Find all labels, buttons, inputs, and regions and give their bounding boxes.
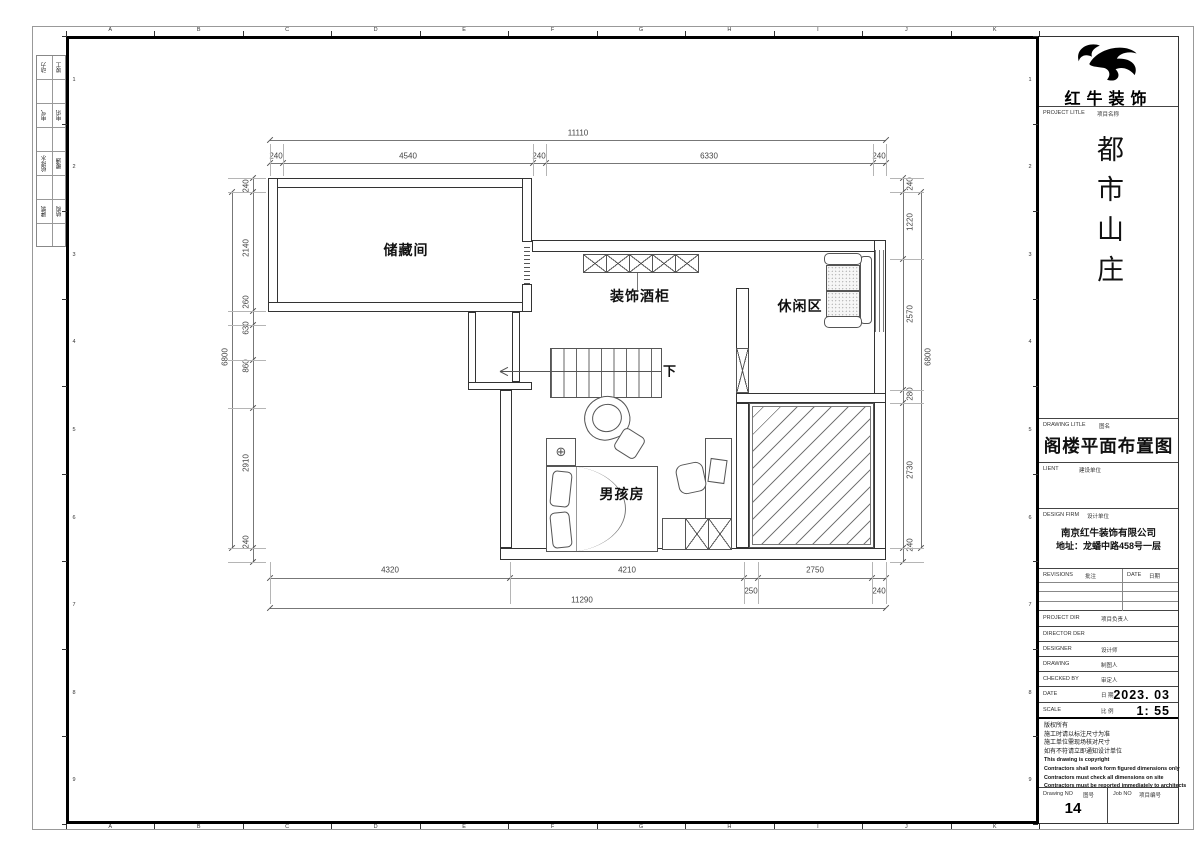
tb-logo-section: 红牛装饰 bbox=[1039, 37, 1178, 107]
copyright-line: Contractors must check all dimensions on… bbox=[1044, 774, 1178, 783]
door-symbol bbox=[524, 244, 530, 284]
grid-tick bbox=[154, 824, 155, 829]
sofa-armrest bbox=[824, 316, 862, 328]
grid-number-right: 3 bbox=[1028, 252, 1031, 258]
grid-letter-top: A bbox=[108, 27, 112, 33]
revisions-label-cn: 批注 bbox=[1085, 572, 1096, 580]
extension-line bbox=[873, 144, 874, 176]
grid-letter-bottom: K bbox=[993, 824, 997, 830]
grid-letter-bottom: A bbox=[108, 824, 112, 830]
grid-number-right: 1 bbox=[1028, 77, 1031, 83]
tb-copyright-section: 版权所有 施工时请以标注尺寸为准 施工单位需现场核对尺寸 如有不符请立即通知设计… bbox=[1039, 719, 1178, 788]
row-label-cn: 制图人 bbox=[1101, 661, 1118, 669]
date-col-label-cn: 日期 bbox=[1149, 572, 1160, 580]
grid-tick bbox=[62, 36, 67, 37]
grid-letter-bottom: I bbox=[817, 824, 819, 830]
copyright-line: Contractors shall work form figured dime… bbox=[1044, 765, 1178, 774]
firm-label-cn: 设计单位 bbox=[1087, 512, 1109, 520]
dim-line bbox=[270, 578, 886, 579]
revisions-label: REVISIONS bbox=[1043, 572, 1073, 578]
grid-tick bbox=[1033, 649, 1038, 650]
dim-bottom: 250 bbox=[744, 587, 757, 596]
dim-tick bbox=[883, 137, 889, 143]
grid-tick bbox=[1033, 561, 1038, 562]
grid-tick bbox=[774, 824, 775, 829]
drain-symbol: ⊕ bbox=[546, 438, 576, 466]
tb-row-checked: CHECKED BY 审定人 bbox=[1039, 672, 1178, 687]
grid-number-right: 7 bbox=[1028, 602, 1031, 608]
extension-line bbox=[270, 144, 271, 176]
grid-tick bbox=[1033, 299, 1038, 300]
wall bbox=[522, 178, 532, 242]
grid-tick bbox=[1033, 824, 1038, 825]
wine-cabinet-cell bbox=[606, 254, 630, 273]
dim-line bbox=[270, 608, 886, 609]
grid-number-left: 3 bbox=[72, 252, 75, 258]
dim-right: 2570 bbox=[906, 305, 915, 323]
row-label-cn: 审定人 bbox=[1101, 676, 1118, 684]
dim-bottom: 240 bbox=[872, 587, 885, 596]
grid-tick bbox=[1033, 736, 1038, 737]
copyright-line: 版权所有 bbox=[1044, 722, 1178, 731]
dim-line bbox=[903, 178, 904, 562]
grid-number-right: 2 bbox=[1028, 164, 1031, 170]
client-label: LIENT bbox=[1043, 466, 1059, 472]
grid-number-left: 2 bbox=[72, 164, 75, 170]
grid-letter-top: C bbox=[285, 27, 289, 33]
job-no-label-cn: 项目编号 bbox=[1139, 791, 1161, 799]
grid-tick bbox=[154, 31, 155, 36]
extension-line bbox=[270, 562, 271, 604]
extension-line bbox=[228, 178, 266, 179]
extension-line bbox=[886, 562, 887, 604]
grid-number-left: 8 bbox=[72, 690, 75, 696]
wine-cabinet-cell bbox=[629, 254, 653, 273]
grid-letter-bottom: J bbox=[905, 824, 908, 830]
extension-line bbox=[228, 325, 266, 326]
project-title-label: PROJECT LITLE bbox=[1043, 110, 1085, 116]
tb-revisions-section: REVISIONS 批注 DATE 日期 bbox=[1039, 569, 1178, 611]
grid-letter-top: G bbox=[639, 27, 643, 33]
copyright-line: This drawing is copyright bbox=[1044, 756, 1178, 765]
extension-line bbox=[886, 144, 887, 176]
desk-chair bbox=[674, 460, 708, 495]
row-label: DESIGNER bbox=[1043, 646, 1072, 652]
grid-tick bbox=[1033, 474, 1038, 475]
grid-tick bbox=[597, 31, 598, 36]
copyright-line: 施工单位需现场核对尺寸 bbox=[1044, 739, 1178, 748]
revisions-divider bbox=[1122, 569, 1123, 611]
firm-label: DESIGN FIRM bbox=[1043, 512, 1079, 518]
room-label-wine-cabinet: 装饰酒柜 bbox=[610, 286, 670, 306]
grid-tick bbox=[862, 824, 863, 829]
wall bbox=[268, 178, 532, 188]
grid-tick bbox=[1033, 124, 1038, 125]
extension-line bbox=[890, 390, 924, 391]
dim-left: 2140 bbox=[242, 239, 251, 257]
monitor bbox=[707, 458, 727, 484]
grid-number-left: 6 bbox=[72, 515, 75, 521]
extension-line bbox=[510, 562, 511, 604]
grid-tick bbox=[62, 736, 67, 737]
sheet: 动力竣工电气电讯给排水暖通建筑结构 bbox=[0, 0, 1200, 844]
extension-line bbox=[890, 178, 924, 179]
grid-tick bbox=[62, 561, 67, 562]
grid-letter-bottom: E bbox=[462, 824, 466, 830]
wall bbox=[736, 403, 749, 548]
grid-tick bbox=[331, 824, 332, 829]
extension-line bbox=[228, 562, 266, 563]
sofa-cushion bbox=[826, 265, 860, 291]
grid-letter-top: F bbox=[551, 27, 554, 33]
stairs-down-label: 下 bbox=[663, 361, 677, 380]
extension-line bbox=[283, 144, 284, 176]
grid-letter-top: K bbox=[993, 27, 997, 33]
row-label: CHECKED BY bbox=[1043, 676, 1079, 682]
grid-letter-bottom: C bbox=[285, 824, 289, 830]
dim-line bbox=[232, 192, 233, 548]
dim-right: 1220 bbox=[906, 213, 915, 231]
sofa-armrest bbox=[824, 253, 862, 265]
drawing-title-label: DRAWING LITLE bbox=[1043, 422, 1086, 428]
extension-line bbox=[890, 192, 924, 193]
grid-tick bbox=[331, 31, 332, 36]
row-label: DRAWING bbox=[1043, 661, 1069, 667]
client-label-cn: 建设单位 bbox=[1079, 466, 1101, 474]
drawing-no-label: Drawing NO bbox=[1043, 791, 1073, 797]
room-label-storage: 储藏间 bbox=[384, 240, 429, 260]
drawing-no-label-cn: 图号 bbox=[1083, 791, 1094, 799]
extension-line bbox=[758, 562, 759, 604]
extension-line bbox=[872, 562, 873, 604]
floor-plan: ⊕ 储藏间 装饰酒柜 休闲区 男孩房 下 11110 240 4540 240 bbox=[0, 0, 1200, 844]
wall bbox=[468, 382, 532, 390]
grid-number-left: 7 bbox=[72, 602, 75, 608]
stair-arrow bbox=[500, 371, 662, 372]
grid-number-right: 9 bbox=[1028, 777, 1031, 783]
grid-tick bbox=[1033, 386, 1038, 387]
room-label-leisure: 休闲区 bbox=[778, 296, 823, 316]
stairs bbox=[550, 348, 662, 398]
tb-project-section: PROJECT LITLE 项目名称 都市山庄 bbox=[1039, 107, 1178, 419]
grid-tick bbox=[1039, 824, 1040, 829]
tb-row-scale: SCALE 比 例 1: 55 bbox=[1039, 703, 1178, 719]
grid-tick bbox=[685, 824, 686, 829]
wall bbox=[268, 302, 532, 312]
sofa-back bbox=[860, 256, 872, 324]
grid-tick bbox=[62, 124, 67, 125]
extension-line bbox=[744, 562, 745, 604]
grid-tick bbox=[951, 824, 952, 829]
grid-tick bbox=[62, 211, 67, 212]
grid-number-right: 4 bbox=[1028, 339, 1031, 345]
tb-row-director: DIRECTOR DER bbox=[1039, 627, 1178, 642]
date-col-label: DATE bbox=[1127, 572, 1141, 578]
bull-logo-icon bbox=[1057, 39, 1161, 85]
grid-number-left: 9 bbox=[72, 777, 75, 783]
date-value: 2023. 03 bbox=[1113, 688, 1170, 702]
row-label: DIRECTOR DER bbox=[1043, 631, 1085, 637]
tb-number-section: Drawing NO 图号 14 Job NO 项目编号 bbox=[1039, 788, 1178, 824]
grid-letter-bottom: G bbox=[639, 824, 643, 830]
column bbox=[736, 348, 749, 393]
wine-cabinet-cell bbox=[583, 254, 607, 273]
extension-line bbox=[890, 403, 924, 404]
dim-line bbox=[921, 192, 922, 548]
extension-line bbox=[228, 192, 266, 193]
row-label-cn: 设计师 bbox=[1101, 646, 1118, 654]
grid-tick bbox=[243, 824, 244, 829]
grid-letter-top: E bbox=[462, 27, 466, 33]
drawing-no-value: 14 bbox=[1039, 800, 1107, 817]
grid-letter-top: J bbox=[905, 27, 908, 33]
row-label-cn: 项目负责人 bbox=[1101, 615, 1129, 623]
grid-tick bbox=[1033, 36, 1038, 37]
dim-left: 260 bbox=[242, 295, 251, 308]
wall bbox=[522, 284, 532, 312]
dim-line bbox=[253, 178, 254, 562]
wall bbox=[468, 312, 476, 390]
void-hatch bbox=[749, 403, 874, 548]
grid-letter-bottom: B bbox=[197, 824, 201, 830]
grid-tick bbox=[685, 31, 686, 36]
tb-row-designer: DESIGNER 设计师 bbox=[1039, 642, 1178, 657]
tb-client-section: LIENT 建设单位 bbox=[1039, 463, 1178, 509]
grid-letter-top: I bbox=[817, 27, 819, 33]
wall bbox=[268, 178, 278, 312]
grid-number-left: 5 bbox=[72, 427, 75, 433]
grid-tick bbox=[508, 31, 509, 36]
extension-line bbox=[533, 144, 534, 176]
cabinet-cell bbox=[708, 518, 732, 550]
extension-line bbox=[228, 360, 266, 361]
project-title: 都市山庄 bbox=[1089, 135, 1128, 295]
extension-line bbox=[890, 259, 924, 260]
grid-number-left: 4 bbox=[72, 339, 75, 345]
copyright-line: 如有不符请立即通知设计单位 bbox=[1044, 748, 1178, 757]
grid-letter-top: D bbox=[374, 27, 378, 33]
extension-line bbox=[228, 311, 266, 312]
wall bbox=[532, 240, 886, 252]
grid-tick bbox=[774, 31, 775, 36]
grid-number-right: 6 bbox=[1028, 515, 1031, 521]
extension-line bbox=[546, 144, 547, 176]
wine-cabinet-cell bbox=[675, 254, 699, 273]
dim-bottom: 2750 bbox=[806, 566, 824, 575]
dim-line bbox=[270, 163, 886, 164]
drawing-title: 阁楼平面布置图 bbox=[1039, 433, 1178, 458]
grid-letter-top: H bbox=[727, 27, 731, 33]
grid-number-left: 1 bbox=[72, 77, 75, 83]
cabinet-cell bbox=[685, 518, 709, 550]
extension-line bbox=[228, 548, 266, 549]
grid-letter-bottom: H bbox=[727, 824, 731, 830]
row-label: PROJECT DIR bbox=[1043, 615, 1080, 621]
row-label: SCALE bbox=[1043, 707, 1061, 713]
grid-letter-bottom: F bbox=[551, 824, 554, 830]
dim-bottom: 4320 bbox=[381, 566, 399, 575]
grid-tick bbox=[243, 31, 244, 36]
tb-firm-section: DESIGN FIRM 设计单位 南京红牛装饰有限公司 地址：龙蟠中路458号一… bbox=[1039, 509, 1178, 569]
tb-drawing-section: DRAWING LITLE 图名 阁楼平面布置图 bbox=[1039, 419, 1178, 463]
firm-address: 地址：龙蟠中路458号一层 bbox=[1039, 539, 1178, 552]
grid-tick bbox=[508, 824, 509, 829]
job-no-label: Job NO bbox=[1113, 791, 1132, 797]
grid-tick bbox=[62, 299, 67, 300]
grid-tick bbox=[597, 824, 598, 829]
grid-tick bbox=[420, 824, 421, 829]
wine-cabinet-cell bbox=[652, 254, 676, 273]
grid-letter-top: B bbox=[197, 27, 201, 33]
dim-left: 2910 bbox=[242, 454, 251, 472]
dim-bottom-total: 11290 bbox=[571, 596, 593, 605]
dim-right-total: 6800 bbox=[924, 348, 933, 366]
dim-bottom: 4210 bbox=[618, 566, 636, 575]
tb-row-date: DATE 日 期 2023. 03 bbox=[1039, 687, 1178, 703]
row-label: DATE bbox=[1043, 691, 1057, 697]
wall bbox=[500, 390, 512, 548]
grid-letter-bottom: D bbox=[374, 824, 378, 830]
dim-right: 240 bbox=[906, 538, 915, 551]
grid-tick bbox=[62, 474, 67, 475]
project-title-label-cn: 项目名称 bbox=[1097, 110, 1119, 118]
number-section-divider bbox=[1107, 788, 1108, 824]
sofa-cushion bbox=[826, 291, 860, 317]
tb-row-drawing: DRAWING 制图人 bbox=[1039, 657, 1178, 672]
extension-line bbox=[890, 548, 924, 549]
dim-right: 240 bbox=[906, 177, 915, 190]
grid-tick bbox=[62, 649, 67, 650]
dim-top-total: 11110 bbox=[568, 129, 588, 138]
dim-left: 240 bbox=[242, 179, 251, 192]
dim-left-total: 6800 bbox=[221, 348, 230, 366]
dim-right: 2730 bbox=[906, 461, 915, 479]
dim-left: 240 bbox=[242, 535, 251, 548]
window-hatch bbox=[875, 250, 886, 332]
extension-line bbox=[890, 562, 924, 563]
tb-row-project-dir: PROJECT DIR 项目负责人 bbox=[1039, 611, 1178, 627]
row-label-cn: 比 例 bbox=[1101, 707, 1114, 715]
grid-number-right: 5 bbox=[1028, 427, 1031, 433]
grid-tick bbox=[951, 31, 952, 36]
dim-left: 630 bbox=[242, 321, 251, 334]
drawing-title-label-cn: 图名 bbox=[1099, 422, 1110, 430]
room-label-boy-room: 男孩房 bbox=[600, 484, 645, 504]
title-block: 红牛装饰 PROJECT LITLE 项目名称 都市山庄 DRAWING LIT… bbox=[1039, 36, 1179, 824]
dim-tick bbox=[883, 605, 889, 611]
grid-tick bbox=[420, 31, 421, 36]
grid-tick bbox=[62, 824, 67, 825]
dim-top: 4540 bbox=[399, 152, 417, 161]
firm-name: 南京红牛装饰有限公司 bbox=[1039, 525, 1178, 539]
grid-tick bbox=[1033, 211, 1038, 212]
copyright-line: 施工时请以标注尺寸为准 bbox=[1044, 731, 1178, 740]
cabinet-cell bbox=[662, 518, 686, 550]
scale-value: 1: 55 bbox=[1137, 704, 1171, 718]
grid-tick bbox=[1039, 31, 1040, 36]
extension-line bbox=[228, 408, 266, 409]
grid-tick bbox=[862, 31, 863, 36]
dim-top: 6330 bbox=[700, 152, 718, 161]
grid-tick bbox=[62, 386, 67, 387]
wall bbox=[736, 393, 886, 403]
dim-line bbox=[270, 140, 886, 141]
grid-number-right: 8 bbox=[1028, 690, 1031, 696]
row-label-cn: 日 期 bbox=[1101, 691, 1114, 699]
logo-text: 红牛装饰 bbox=[1039, 85, 1178, 109]
